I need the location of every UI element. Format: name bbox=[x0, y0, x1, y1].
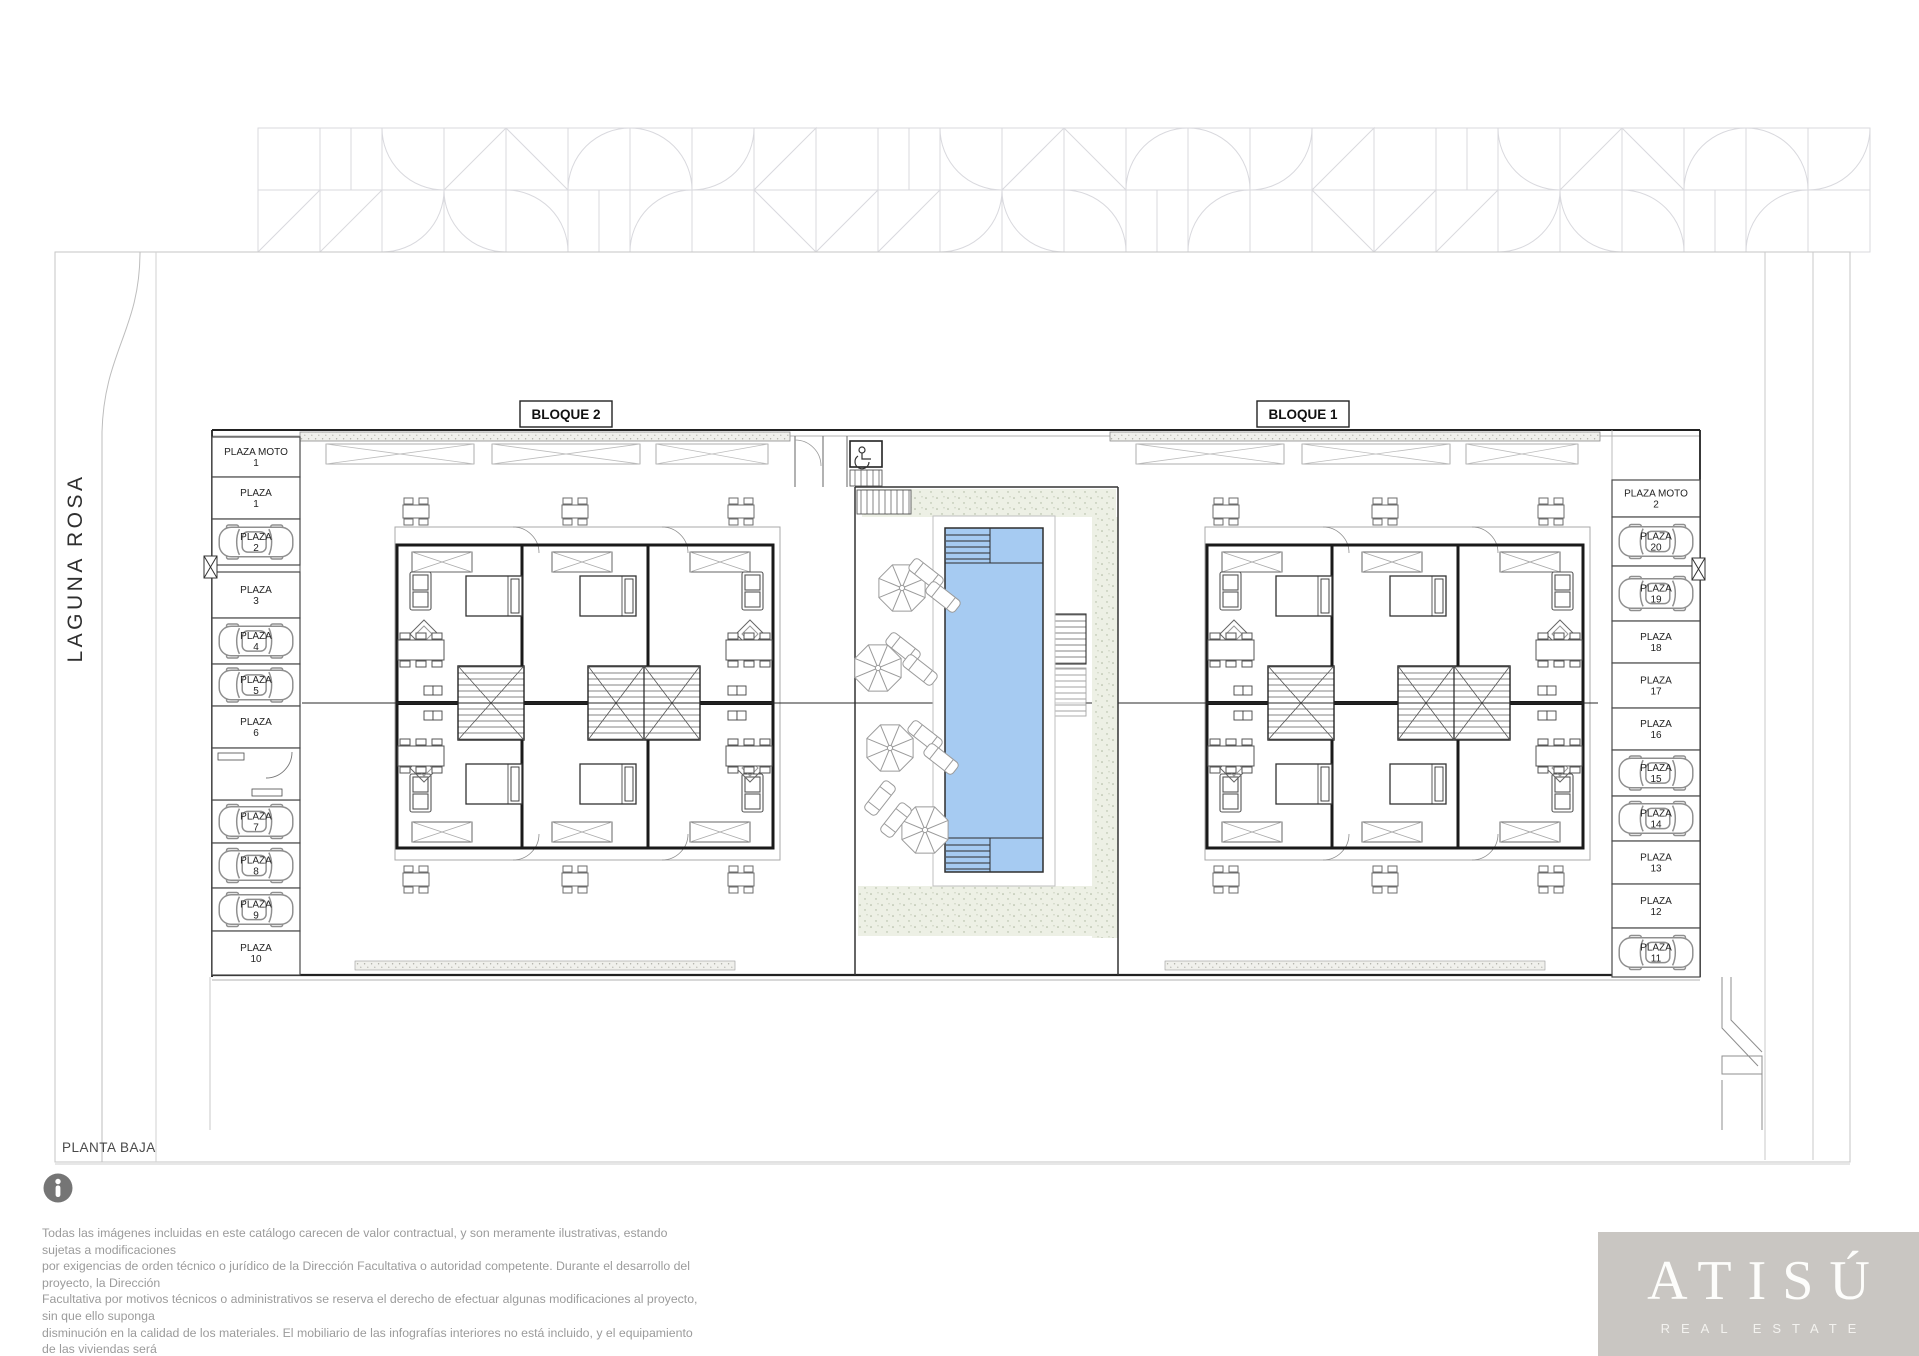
stairs bbox=[850, 470, 882, 486]
stall-label: PLAZA bbox=[240, 488, 272, 499]
parking-stall: PLAZA2 bbox=[212, 519, 300, 565]
parking-stall: PLAZA8 bbox=[212, 843, 300, 888]
block-2-floorplan bbox=[300, 432, 790, 970]
stall-number: 17 bbox=[1650, 687, 1662, 698]
brand-tagline: REAL ESTATE bbox=[1650, 1321, 1868, 1336]
parasol-icon bbox=[867, 725, 913, 771]
parking-stall: PLAZA11 bbox=[1612, 928, 1700, 977]
stall-label: PLAZA MOTO bbox=[1624, 489, 1688, 500]
storage-room bbox=[212, 748, 300, 800]
driveway bbox=[1722, 977, 1762, 1130]
stall-label: PLAZA bbox=[240, 585, 272, 596]
parking-stall: PLAZA15 bbox=[1612, 750, 1700, 796]
stall-number: 2 bbox=[253, 543, 259, 554]
stall-label: PLAZA bbox=[1640, 532, 1672, 543]
parking-stall: PLAZA20 bbox=[1612, 517, 1700, 566]
stall-number: 20 bbox=[1650, 543, 1662, 554]
sun-lounger-icon bbox=[863, 779, 897, 817]
stall-label: PLAZA bbox=[1640, 632, 1672, 643]
stall-label: PLAZA bbox=[1640, 853, 1672, 864]
stall-number: 3 bbox=[253, 596, 259, 607]
gravel-band bbox=[1092, 517, 1118, 938]
svg-text:BLOQUE 2: BLOQUE 2 bbox=[531, 407, 600, 422]
stall-number: 4 bbox=[253, 642, 259, 653]
stall-label: PLAZA bbox=[240, 943, 272, 954]
stall-label: PLAZA bbox=[240, 856, 272, 867]
stall-number: 9 bbox=[253, 911, 259, 922]
stall-label: PLAZA bbox=[1640, 943, 1672, 954]
parking-stall: PLAZA10 bbox=[212, 931, 300, 975]
stall-number: 1 bbox=[253, 458, 259, 469]
stall-label: PLAZA bbox=[240, 812, 272, 823]
stall-number: 10 bbox=[250, 954, 262, 965]
stall-number: 13 bbox=[1650, 864, 1662, 875]
block-1-floorplan bbox=[1110, 432, 1600, 970]
svg-text:BLOQUE 1: BLOQUE 1 bbox=[1268, 407, 1338, 422]
parking-stall: PLAZA9 bbox=[212, 888, 300, 931]
parking-stall: PLAZA3 bbox=[212, 572, 300, 618]
disclaimer-line: por exigencias de orden técnico o jurídi… bbox=[42, 1258, 702, 1291]
parasol-icon bbox=[855, 645, 901, 691]
stall-number: 8 bbox=[253, 867, 259, 878]
stall-number: 19 bbox=[1650, 595, 1662, 606]
plan-title: PLANTA BAJA bbox=[62, 1140, 156, 1155]
stall-number: 12 bbox=[1650, 907, 1662, 918]
parking-column-right: PLAZA MOTO2PLAZA20PLAZA19PLAZA18PLAZA17P… bbox=[1612, 480, 1700, 977]
stall-label: PLAZA bbox=[1640, 809, 1672, 820]
parking-stall: PLAZA5 bbox=[212, 664, 300, 706]
stall-label: PLAZA bbox=[1640, 676, 1672, 687]
stall-number: 18 bbox=[1650, 643, 1662, 654]
stall-number: 6 bbox=[253, 728, 259, 739]
stall-label: PLAZA bbox=[240, 532, 272, 543]
stall-label: PLAZA bbox=[1640, 896, 1672, 907]
block-1-label: BLOQUE 1 bbox=[1257, 401, 1349, 427]
stall-label: PLAZA bbox=[240, 900, 272, 911]
disclaimer-block: Todas las imágenes incluidas en este cat… bbox=[42, 1172, 702, 1356]
parking-stall: PLAZA1 bbox=[212, 477, 300, 519]
parking-stall: PLAZA18 bbox=[1612, 621, 1700, 663]
swimming-pool bbox=[945, 528, 1043, 872]
parking-stall: PLAZA16 bbox=[1612, 708, 1700, 750]
stall-number: 15 bbox=[1650, 774, 1662, 785]
parking-stall: PLAZA MOTO1 bbox=[212, 437, 300, 477]
stall-label: PLAZA bbox=[240, 717, 272, 728]
info-icon bbox=[42, 1172, 76, 1206]
parking-stall: PLAZA4 bbox=[212, 618, 300, 664]
brand-logo: ATISÚ REAL ESTATE bbox=[1598, 1232, 1919, 1356]
parking-stall: PLAZA MOTO2 bbox=[1612, 480, 1700, 517]
parking-stall: PLAZA7 bbox=[212, 800, 300, 843]
stall-number: 5 bbox=[253, 686, 259, 697]
brand-name: ATISÚ bbox=[1631, 1253, 1886, 1309]
street-label: LAGUNA ROSA bbox=[64, 473, 87, 662]
gravel-band bbox=[858, 886, 1116, 936]
parking-stall: PLAZA12 bbox=[1612, 884, 1700, 928]
stall-label: PLAZA MOTO bbox=[224, 447, 288, 458]
site-plan: LAGUNA ROSA BLOQUE 2 BLOQUE 1 bbox=[0, 0, 1919, 1356]
disclaimer-line: Facultativa por motivos técnicos o admin… bbox=[42, 1291, 702, 1324]
stall-label: PLAZA bbox=[1640, 719, 1672, 730]
block-2-label: BLOQUE 2 bbox=[520, 401, 612, 427]
stall-number: 16 bbox=[1650, 730, 1662, 741]
stall-number: 11 bbox=[1651, 954, 1662, 965]
stall-number: 7 bbox=[253, 823, 259, 834]
stall-number: 14 bbox=[1650, 820, 1662, 831]
parking-stall: PLAZA19 bbox=[1612, 566, 1700, 621]
stall-number: 1 bbox=[253, 499, 259, 510]
entrance-corridor bbox=[795, 436, 847, 487]
stall-label: PLAZA bbox=[1640, 763, 1672, 774]
decorative-tile-pattern bbox=[258, 128, 1870, 252]
stall-label: PLAZA bbox=[240, 675, 272, 686]
disclaimer-line: Todas las imágenes incluidas en este cat… bbox=[42, 1225, 702, 1258]
stall-label: PLAZA bbox=[240, 631, 272, 642]
stairs bbox=[857, 490, 911, 514]
parking-stall: PLAZA17 bbox=[1612, 663, 1700, 708]
parking-stall: PLAZA13 bbox=[1612, 841, 1700, 884]
stall-number: 2 bbox=[1653, 500, 1659, 511]
parking-column-left: PLAZA MOTO1PLAZA1PLAZA2PLAZA3PLAZA4PLAZA… bbox=[212, 437, 300, 975]
parking-stall: PLAZA14 bbox=[1612, 796, 1700, 841]
parking-stall: PLAZA6 bbox=[212, 706, 300, 748]
stall-label: PLAZA bbox=[1640, 584, 1672, 595]
disclaimer-text: Todas las imágenes incluidas en este cat… bbox=[42, 1225, 702, 1356]
catalog-page: LAGUNA ROSA BLOQUE 2 BLOQUE 1 bbox=[0, 0, 1919, 1356]
courtyard bbox=[795, 436, 1118, 975]
disclaimer-line: disminución en la calidad de los materia… bbox=[42, 1325, 702, 1356]
elevator-wheelchair-icon bbox=[850, 441, 882, 469]
